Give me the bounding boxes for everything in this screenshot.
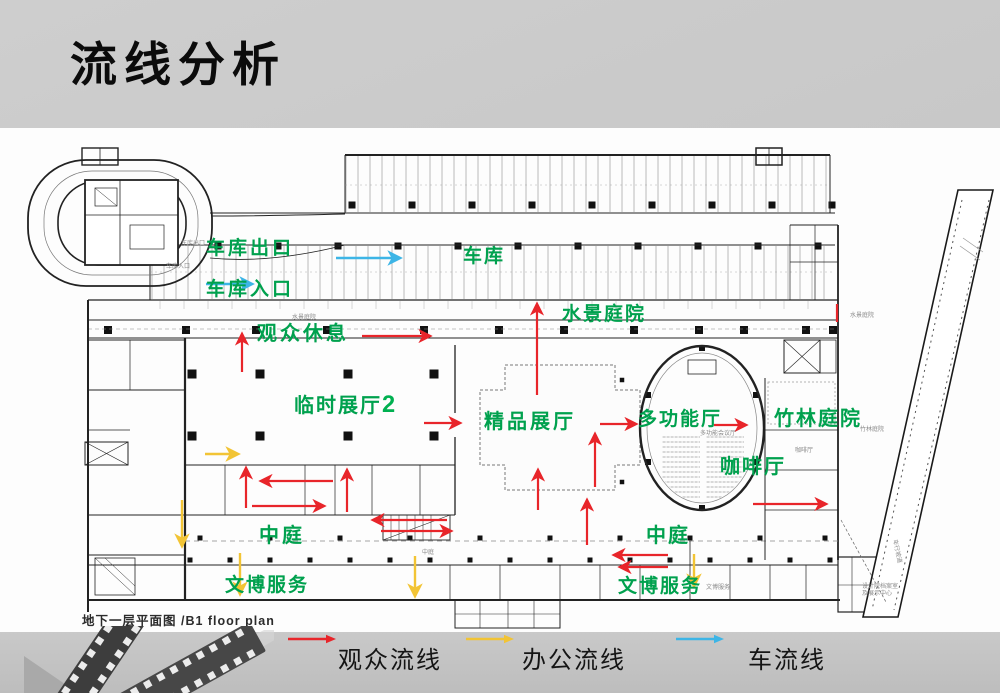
office-flow-arrow-icon xyxy=(464,632,514,646)
legend-label-vehicle-flow: 车流线 xyxy=(748,640,826,675)
office-flow-arrows xyxy=(182,454,694,596)
legend-item-office-flow: 办公流线 xyxy=(464,630,626,675)
vehicle-flow-arrows xyxy=(206,258,400,284)
floor-plan-drawing xyxy=(0,128,1000,632)
floor-plan: 车库出口车库车库入口水景庭院观众休息临时展厅2精品展厅多功能厅竹林庭院咖啡厅中庭… xyxy=(0,128,1000,632)
legend-label-visitor-flow: 观众流线 xyxy=(338,640,442,675)
parking-texture xyxy=(104,156,837,563)
slide-title: 流线分析 xyxy=(70,26,286,95)
vehicle-flow-arrow-icon xyxy=(674,632,724,646)
legend-label-office-flow: 办公流线 xyxy=(522,640,626,675)
plan-caption: 地下一层平面图 /B1 floor plan xyxy=(82,610,275,629)
building-walls xyxy=(28,148,993,628)
slide: 流线分析 xyxy=(0,0,1000,693)
legend-item-visitor-flow: 观众流线 xyxy=(286,630,442,675)
visitor-flow-arrow-icon xyxy=(286,632,336,646)
legend-item-vehicle-flow: 车流线 xyxy=(674,630,826,675)
